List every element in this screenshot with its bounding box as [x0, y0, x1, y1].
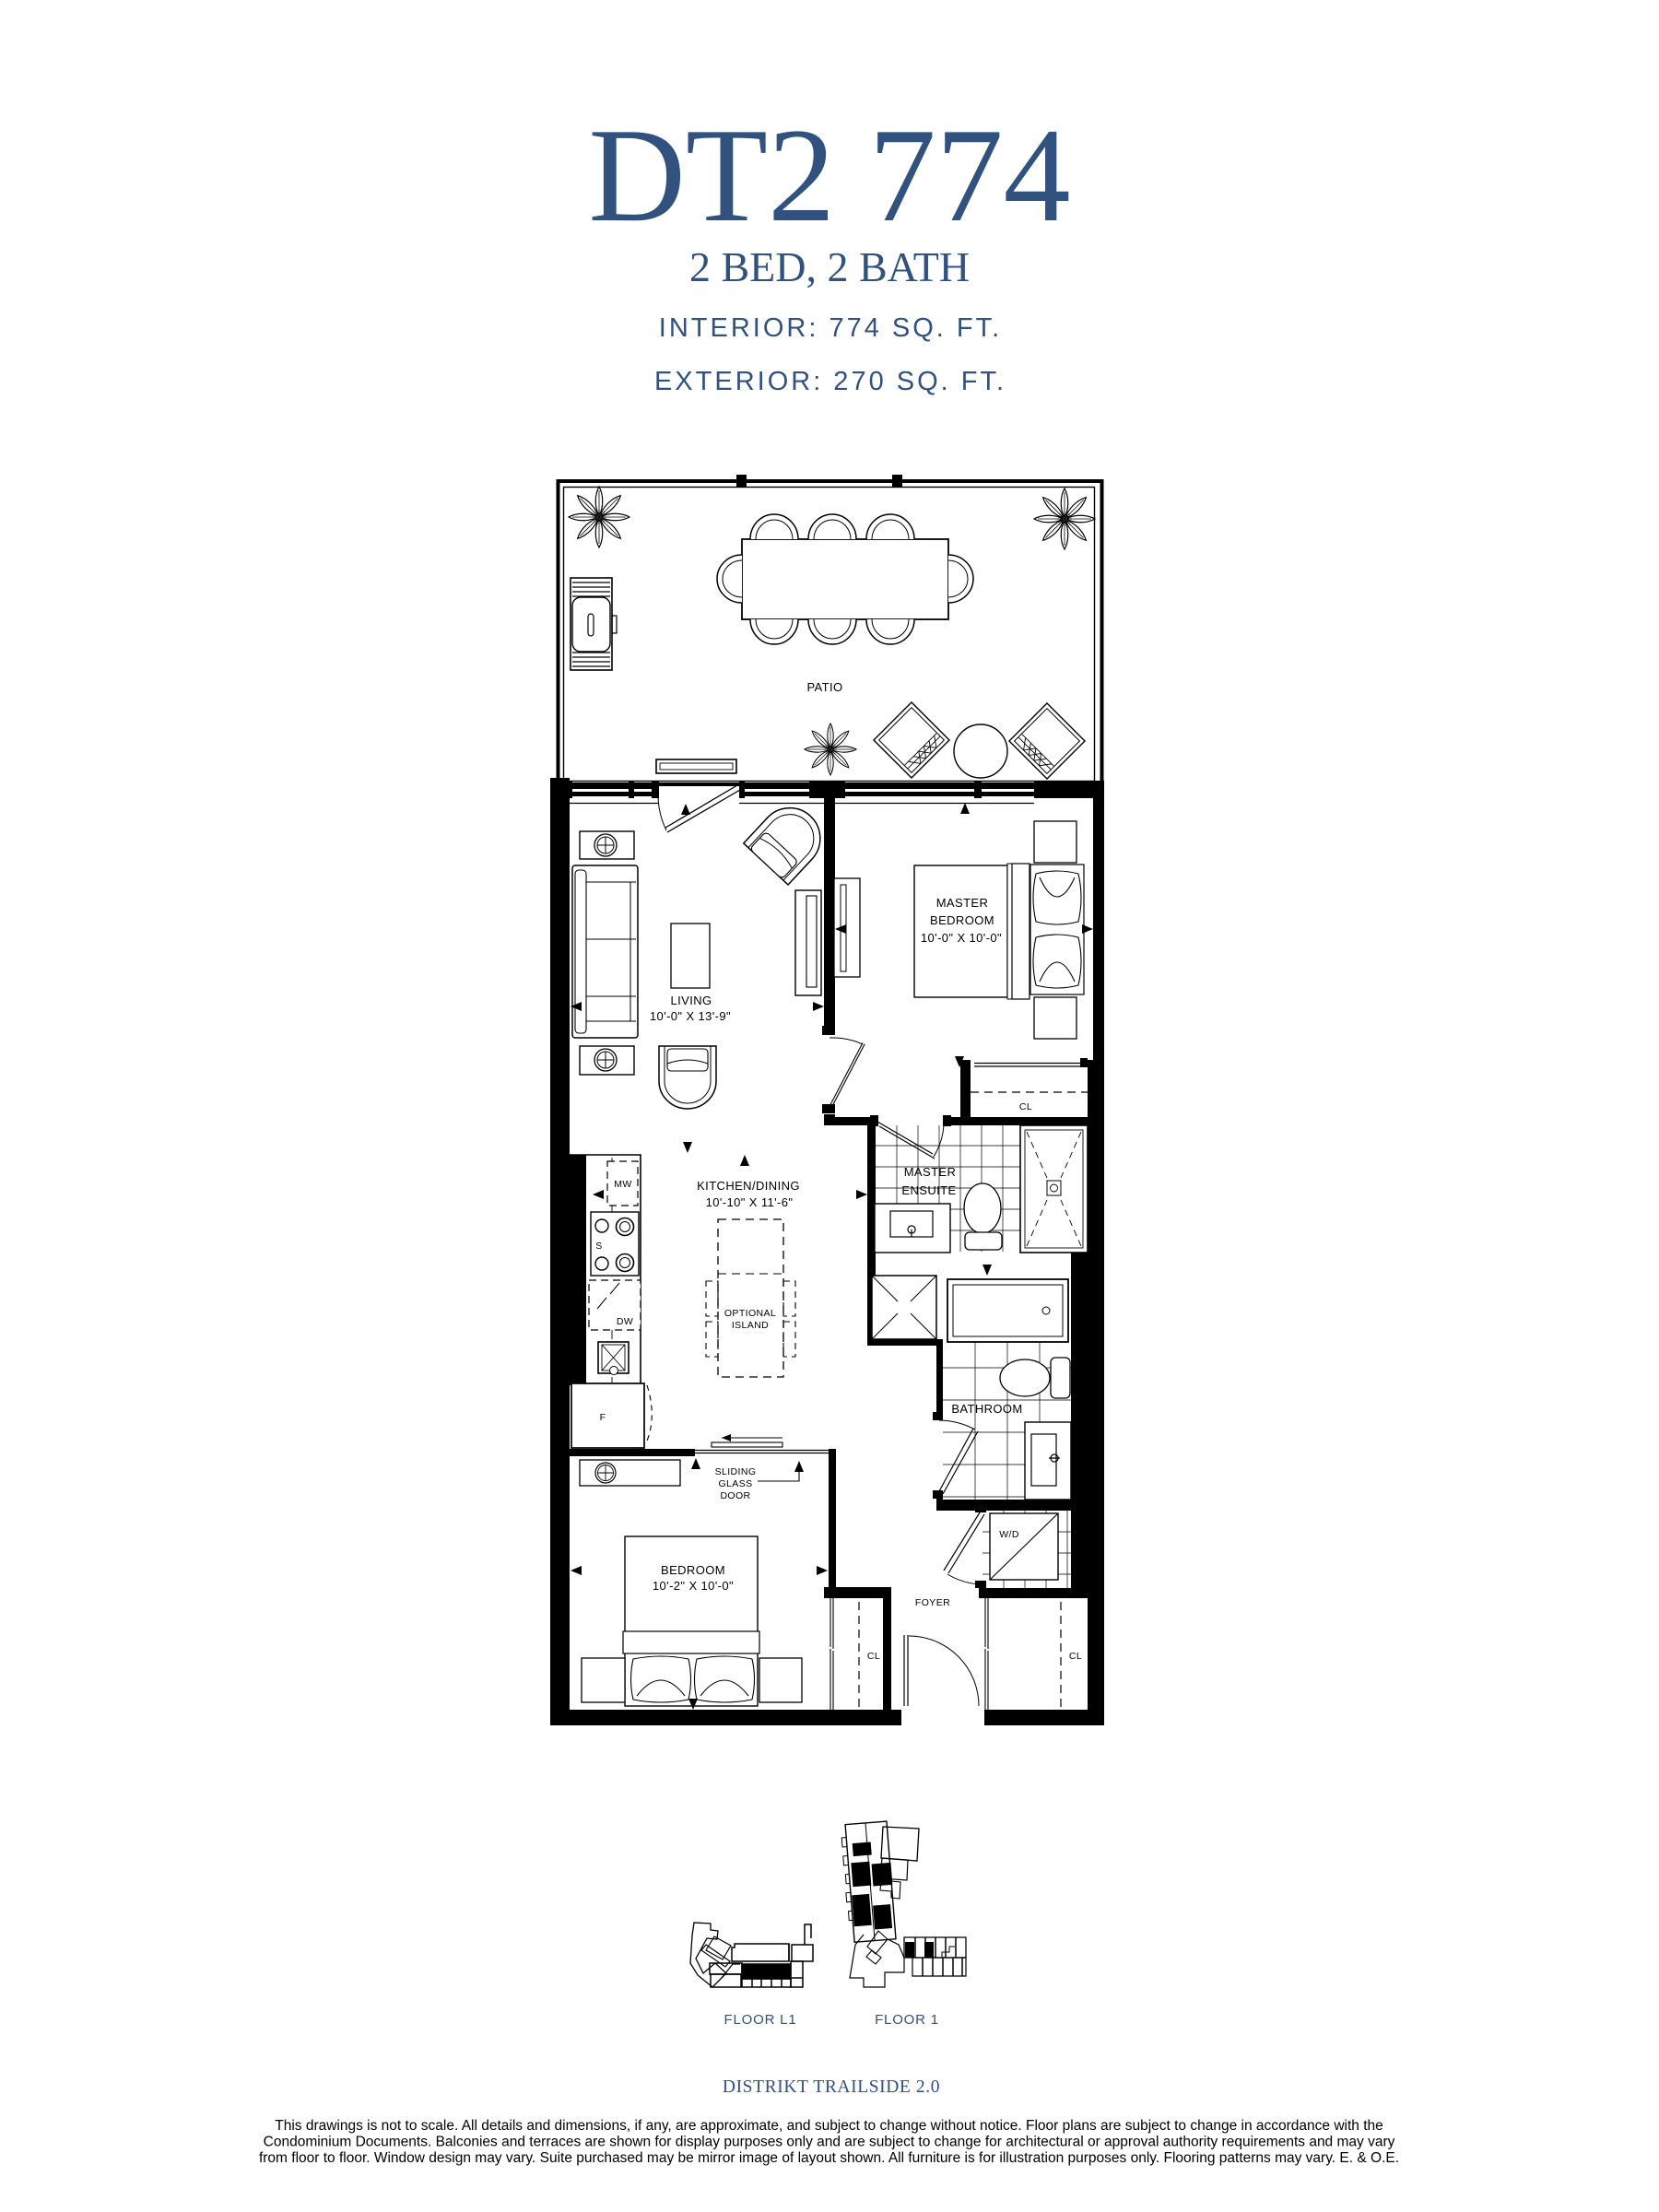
svg-text:ENSUITE: ENSUITE	[901, 1183, 956, 1197]
svg-text:FOYER: FOYER	[915, 1597, 950, 1608]
svg-text:10'-2" X 10'-0": 10'-2" X 10'-0"	[653, 1579, 734, 1593]
svg-text:10'-0" X 10'-0": 10'-0" X 10'-0"	[921, 931, 1002, 945]
svg-text:Condominium Documents. Balconi: Condominium Documents. Balconies and ter…	[264, 2135, 1395, 2150]
svg-text:from floor to floor. Window de: from floor to floor. Window design may v…	[259, 2150, 1399, 2166]
svg-text:BEDROOM: BEDROOM	[930, 913, 994, 927]
svg-text:LIVING: LIVING	[670, 994, 712, 1007]
svg-text:This drawings is not to scale.: This drawings is not to scale. All detai…	[275, 2118, 1383, 2134]
svg-text:MASTER: MASTER	[936, 896, 989, 910]
svg-text:DISTRIKT TRAILSIDE 2.0: DISTRIKT TRAILSIDE 2.0	[723, 2077, 940, 2097]
svg-text:W/D: W/D	[999, 1529, 1019, 1540]
svg-text:BATHROOM: BATHROOM	[951, 1402, 1022, 1416]
svg-text:OPTIONAL: OPTIONAL	[724, 1308, 776, 1319]
svg-text:FLOOR 1: FLOOR 1	[875, 2012, 939, 2028]
svg-text:10'-0" X 13'-9": 10'-0" X 13'-9"	[650, 1009, 731, 1023]
svg-text:SLIDING: SLIDING	[715, 1466, 757, 1477]
svg-text:F: F	[600, 1412, 606, 1423]
svg-text:MW: MW	[614, 1179, 631, 1190]
svg-text:INTERIOR: 774 SQ. FT.: INTERIOR: 774 SQ. FT.	[659, 313, 1002, 343]
svg-text:10'-10" X 11'-6": 10'-10" X 11'-6"	[706, 1195, 794, 1209]
svg-text:BEDROOM: BEDROOM	[661, 1563, 725, 1577]
svg-text:KITCHEN/DINING: KITCHEN/DINING	[697, 1179, 800, 1193]
svg-text:CL: CL	[1019, 1101, 1032, 1112]
svg-text:CL: CL	[1069, 1651, 1082, 1662]
svg-text:S: S	[595, 1241, 602, 1252]
svg-text:DW: DW	[617, 1316, 633, 1327]
svg-text:DOOR: DOOR	[720, 1490, 750, 1501]
svg-text:FLOOR L1: FLOOR L1	[724, 2012, 797, 2028]
svg-text:MASTER: MASTER	[904, 1165, 957, 1179]
svg-text:EXTERIOR: 270 SQ. FT.: EXTERIOR: 270 SQ. FT.	[654, 367, 1006, 396]
svg-text:CL: CL	[867, 1651, 880, 1662]
svg-text:ISLAND: ISLAND	[732, 1320, 769, 1331]
svg-text:GLASS: GLASS	[718, 1478, 752, 1489]
svg-text:2 BED, 2 BATH: 2 BED, 2 BATH	[689, 243, 970, 290]
svg-text:DT2 774: DT2 774	[588, 100, 1070, 250]
svg-text:PATIO: PATIO	[806, 680, 842, 694]
